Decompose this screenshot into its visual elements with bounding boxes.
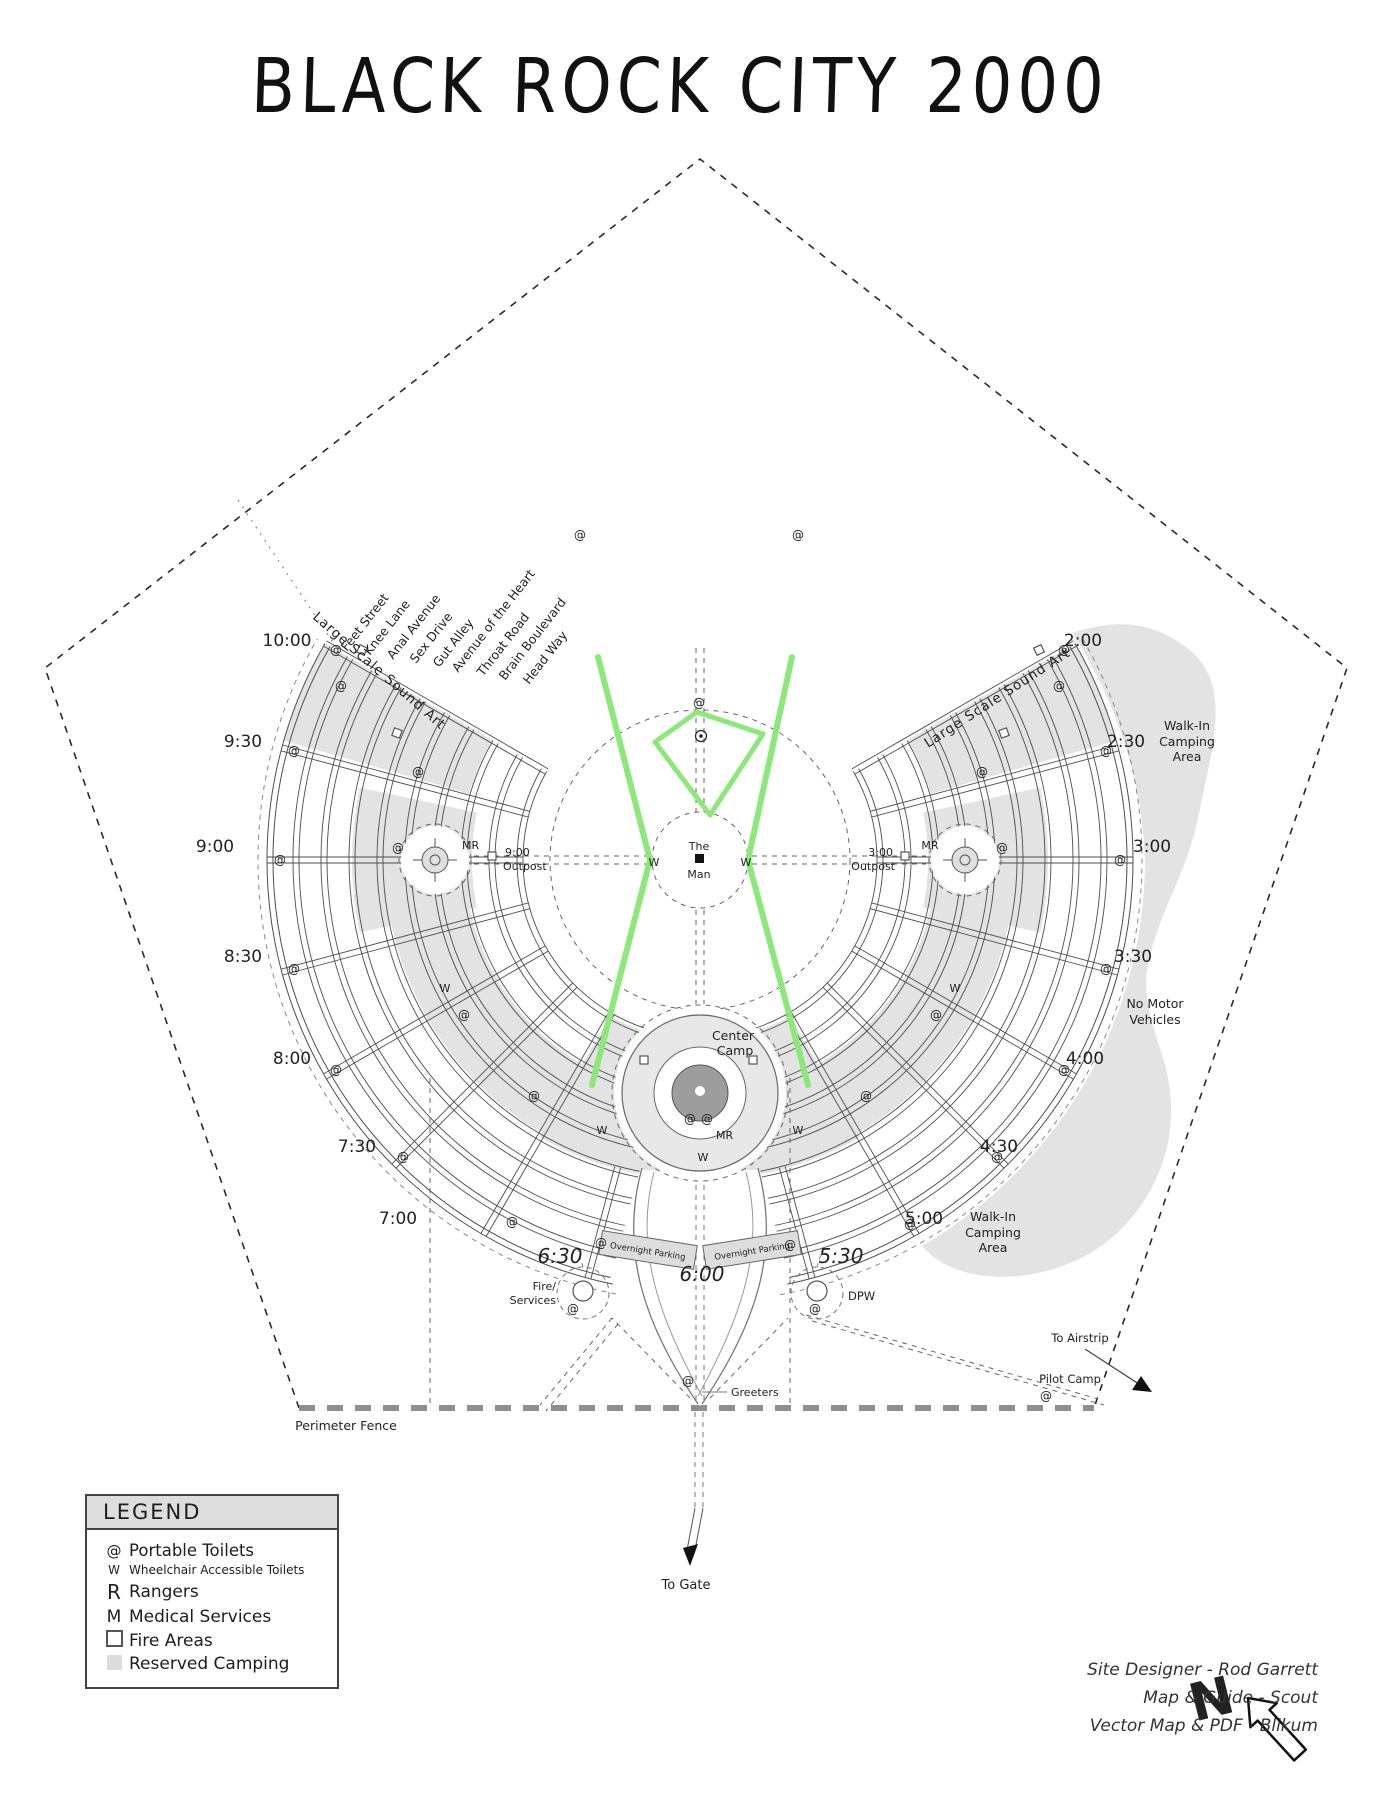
- portable-toilet-icon: @: [595, 1236, 607, 1250]
- outpost-plaza: [952, 847, 978, 873]
- portable-toilet-icon: @: [99, 1542, 129, 1560]
- airstrip-arrowhead-icon: [1132, 1376, 1152, 1392]
- portable-toilet-icon: @: [458, 1008, 470, 1022]
- portable-toilet-icon: @: [392, 841, 404, 855]
- clock-label: 2:30: [1107, 732, 1145, 752]
- clock-label: 9:30: [224, 732, 262, 752]
- portable-toilet-icon: @: [1040, 1389, 1052, 1403]
- medical-icon: M: [99, 1607, 129, 1627]
- outpost-left-word: Outpost: [503, 860, 547, 873]
- clock-label: 3:00: [1133, 837, 1171, 857]
- clock-label: 4:00: [1066, 1049, 1104, 1069]
- clock-label: 8:30: [224, 947, 262, 967]
- walkin-2-line3: Area: [979, 1240, 1008, 1255]
- to-gate-arrowhead-icon: [683, 1544, 698, 1566]
- credits: Site Designer - Rod Garrett Map & Guide …: [1087, 1656, 1318, 1740]
- service-road-left: [540, 1318, 612, 1405]
- portable-toilet-icon: @: [574, 528, 586, 542]
- man-label-top: The: [688, 840, 710, 853]
- green-kite: [655, 712, 763, 815]
- walkin-2-line2: Camping: [965, 1225, 1021, 1240]
- legend-title: LEGEND: [87, 1496, 337, 1530]
- dpw-label: DPW: [848, 1289, 875, 1303]
- dpw-inner: [807, 1281, 827, 1301]
- fire-services-label-2: Services: [510, 1294, 557, 1307]
- legend-item-reserved-camping: Reserved Camping: [99, 1654, 327, 1674]
- street-arc: [517, 769, 883, 1043]
- portable-toilet-icon: @: [1114, 853, 1126, 867]
- fire-area-icon: [99, 1630, 129, 1651]
- entrance-funnel: [610, 1168, 790, 1566]
- wheelchair-toilet-marker: W: [793, 1124, 804, 1137]
- airstrip-road: [806, 1315, 1098, 1399]
- green-chevron-right: [748, 657, 808, 1085]
- credit-line: Vector Map & PDF - Blikum: [1087, 1712, 1318, 1740]
- fire-area-icon: [392, 728, 402, 738]
- portable-toilet-icon: @: [792, 528, 804, 542]
- pilot-camp-label: Pilot Camp: [1039, 1372, 1101, 1386]
- clock-label: 5:00: [905, 1209, 943, 1229]
- outpost-left-mr: MR: [462, 839, 479, 852]
- greeters-label: Greeters: [731, 1386, 779, 1399]
- outpost-plaza: [422, 847, 448, 873]
- portable-toilet-icon: @: [860, 1089, 872, 1103]
- portable-toilet-icon: @: [567, 1302, 579, 1316]
- center-camp-heart-icon: [695, 1086, 705, 1096]
- wheelchair-toilet-marker: W: [950, 982, 961, 995]
- the-man: The Man: [687, 840, 710, 881]
- clock-label: 7:00: [379, 1209, 417, 1229]
- wheelchair-toilet-icon: W: [99, 1563, 129, 1577]
- credit-line: Site Designer - Rod Garrett: [1087, 1656, 1318, 1684]
- street-arc: [523, 772, 877, 1037]
- no-motor-line1: No Motor: [1126, 996, 1184, 1011]
- clock-label: 4:30: [980, 1137, 1018, 1157]
- legend-item-wheelchair-toilets: W Wheelchair Accessible Toilets: [99, 1563, 327, 1577]
- legend-item-portable-toilets: @ Portable Toilets: [99, 1541, 327, 1560]
- outpost-left-time: 9:00: [505, 846, 530, 859]
- man-label-bottom: Man: [687, 868, 710, 881]
- wheelchair-toilet-marker: W: [597, 1124, 608, 1137]
- outpost-right-word: Outpost: [851, 860, 895, 873]
- legend-item-label: Medical Services: [129, 1607, 271, 1627]
- walkin-1-line3: Area: [1173, 749, 1202, 764]
- legend-item-medical: M Medical Services: [99, 1607, 327, 1627]
- rangers-icon: R: [99, 1580, 129, 1604]
- walkin-1-line2: Camping: [1159, 734, 1215, 749]
- kite-marker: [696, 731, 707, 742]
- wheelchair-toilet-marker: W: [741, 856, 752, 869]
- portable-toilet-icon: @: [809, 1302, 821, 1316]
- legend-box: LEGEND @ Portable Toilets W Wheelchair A…: [85, 1494, 339, 1689]
- clock-label: 2:00: [1064, 631, 1102, 651]
- clock-label: 9:00: [196, 837, 234, 857]
- portable-toilet-icon: @: [930, 1008, 942, 1022]
- portable-toilet-icon: @: [784, 1238, 796, 1252]
- wheelchair-toilet-marker: W: [440, 982, 451, 995]
- legend-item-label: Wheelchair Accessible Toilets: [129, 1563, 304, 1577]
- walkin-2-line1: Walk-In: [970, 1209, 1016, 1224]
- portable-toilet-icon: @: [1053, 679, 1065, 693]
- clock-label: 5:30: [819, 1244, 864, 1268]
- gate-road-solid: [687, 1508, 695, 1550]
- portable-toilet-icon: @: [335, 679, 347, 693]
- fire-area-icon: [901, 852, 909, 860]
- legend-item-label: Portable Toilets: [129, 1541, 254, 1560]
- clock-label: 7:30: [338, 1137, 376, 1157]
- reserved-camping-icon: [99, 1655, 129, 1674]
- outpost-right-time: 3:00: [868, 846, 893, 859]
- clock-label: 6:00: [680, 1262, 725, 1286]
- no-motor-line2: Vehicles: [1129, 1012, 1180, 1027]
- portable-toilet-icon: @: [996, 841, 1008, 855]
- legend-item-rangers: R Rangers: [99, 1580, 327, 1604]
- portable-toilet-icon: @: [397, 1150, 409, 1164]
- wheelchair-toilet-marker: W: [649, 856, 660, 869]
- clock-label: 8:00: [273, 1049, 311, 1069]
- legend-body: @ Portable Toilets W Wheelchair Accessib…: [87, 1530, 337, 1687]
- portable-toilet-icon: @: [412, 765, 424, 779]
- portable-toilet-icon: @: [693, 696, 705, 710]
- green-chevron-left: [592, 657, 650, 1085]
- portable-toilet-icon: @: [1100, 962, 1112, 976]
- portable-toilet-icon: @: [330, 1063, 342, 1077]
- credit-line: Map & Guide - Scout: [1087, 1684, 1318, 1712]
- portable-toilet-icon: @: [274, 853, 286, 867]
- fire-area-icon: [640, 1056, 648, 1064]
- portable-toilet-icon: @: [701, 1112, 713, 1126]
- portable-toilet-icon: @: [528, 1089, 540, 1103]
- fire-area-icon: [488, 852, 496, 860]
- center-camp-mr: MR: [716, 1129, 733, 1142]
- target-dot-icon: [699, 734, 703, 738]
- portable-toilet-icon: @: [684, 1112, 696, 1126]
- portable-toilet-icon: @: [506, 1215, 518, 1229]
- funnel-mask: [610, 1170, 790, 1406]
- legend-item-fire-areas: Fire Areas: [99, 1630, 327, 1651]
- legend-item-label: Rangers: [129, 1582, 199, 1602]
- clock-label: 10:00: [263, 631, 312, 651]
- man-icon: [695, 854, 704, 863]
- fire-area-icon: [1034, 645, 1045, 656]
- clock-label: 6:30: [538, 1244, 583, 1268]
- fire-area-icon: [999, 728, 1009, 738]
- perimeter-fence-label: Perimeter Fence: [295, 1418, 397, 1433]
- portable-toilet-icon: @: [682, 1374, 694, 1388]
- portable-toilet-icon: @: [976, 765, 988, 779]
- to-airstrip-label: To Airstrip: [1050, 1331, 1108, 1345]
- legend-item-label: Fire Areas: [129, 1631, 213, 1651]
- fire-services-inner: [573, 1281, 593, 1301]
- gate-road-solid: [695, 1508, 703, 1550]
- legend-item-label: Reserved Camping: [129, 1654, 289, 1674]
- portable-toilet-icon: @: [288, 744, 300, 758]
- center-camp-label-2: Camp: [717, 1043, 754, 1058]
- clock-label: 3:30: [1114, 947, 1152, 967]
- to-gate-label: To Gate: [661, 1578, 711, 1593]
- service-road-left: [546, 1324, 618, 1411]
- outpost-right-mr: MR: [921, 839, 938, 852]
- portable-toilet-icon: @: [288, 962, 300, 976]
- center-camp-label-1: Center: [712, 1028, 755, 1043]
- fire-services-label-1: Fire/: [533, 1280, 557, 1293]
- walkin-1-line1: Walk-In: [1164, 718, 1210, 733]
- wheelchair-toilet-marker: W: [698, 1151, 709, 1164]
